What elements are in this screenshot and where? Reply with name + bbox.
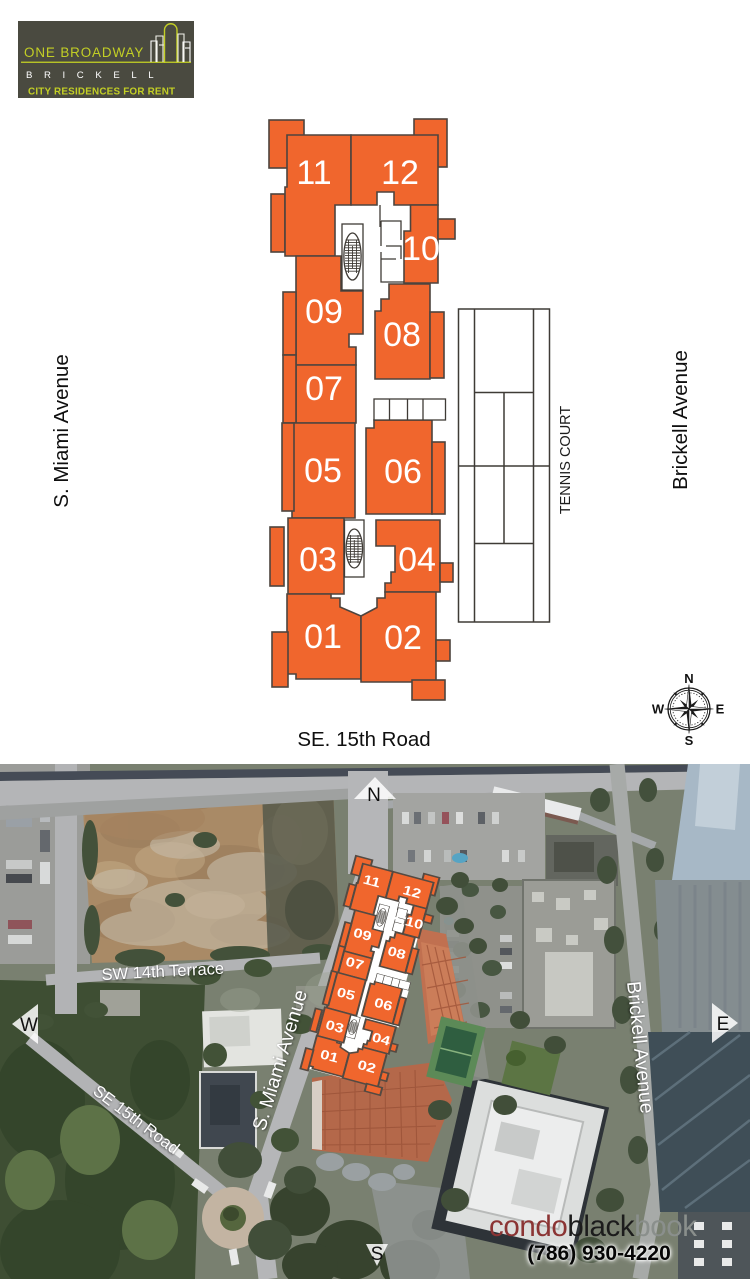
svg-text:N: N bbox=[367, 785, 381, 806]
svg-text:W: W bbox=[652, 702, 665, 717]
svg-text:BRICKELL: BRICKELL bbox=[26, 70, 165, 81]
svg-text:E: E bbox=[716, 702, 725, 717]
svg-text:TENNIS COURT: TENNIS COURT bbox=[558, 406, 574, 515]
svg-text:condoblackbook: condoblackbook bbox=[489, 1210, 697, 1243]
svg-text:(786) 930-4220: (786) 930-4220 bbox=[527, 1242, 671, 1265]
svg-text:E: E bbox=[717, 1014, 730, 1035]
svg-text:N: N bbox=[684, 671, 693, 686]
svg-text:S: S bbox=[371, 1244, 384, 1265]
svg-text:CITY RESIDENCES FOR RENT: CITY RESIDENCES FOR RENT bbox=[28, 87, 175, 98]
svg-text:ONE BROADWAY: ONE BROADWAY bbox=[24, 45, 144, 60]
svg-text:Brickell Avenue: Brickell Avenue bbox=[669, 350, 692, 490]
svg-text:SE. 15th Road: SE. 15th Road bbox=[297, 728, 430, 751]
svg-text:W: W bbox=[20, 1015, 38, 1036]
svg-text:S: S bbox=[685, 733, 694, 748]
svg-text:S. Miami Avenue: S. Miami Avenue bbox=[50, 354, 73, 507]
